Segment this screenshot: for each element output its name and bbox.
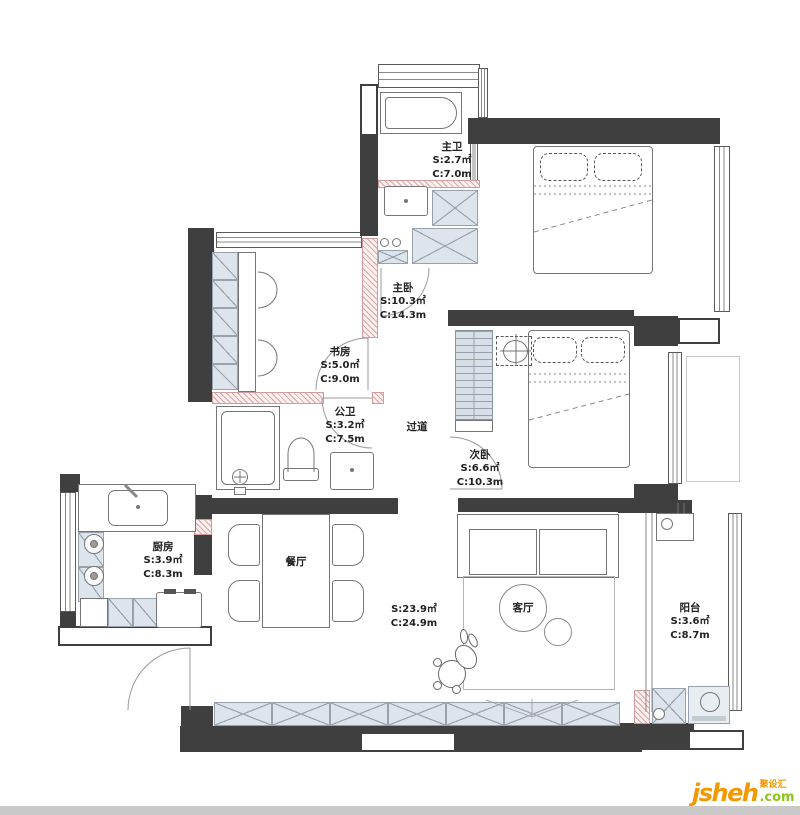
kitchen-cabinet <box>108 598 133 627</box>
rn: 次卧 <box>448 448 512 462</box>
tv-cabinet-cell <box>330 702 388 726</box>
bunny-paw <box>433 681 442 690</box>
dining-chair <box>228 524 260 566</box>
brand-text: jsheh <box>692 781 757 805</box>
bookcase-cell <box>212 336 238 364</box>
span: C:10.3m <box>448 476 512 490</box>
col: 聚设汇 .com <box>759 781 794 804</box>
window-jamb <box>678 318 720 344</box>
room-label-master-bedroom: 主卧S:10.3㎡C:14.3m <box>368 281 438 322</box>
shower-handle <box>234 487 246 495</box>
pillow <box>540 153 588 181</box>
shower-inner <box>221 411 275 485</box>
wardrobe <box>455 330 493 420</box>
span: C:7.0m <box>420 168 484 182</box>
wall-segment <box>448 310 634 326</box>
wall-gap <box>688 730 744 750</box>
fan-symbol <box>503 340 528 363</box>
bookcase-cell <box>212 280 238 308</box>
window-band <box>60 492 76 612</box>
span: C:24.9m <box>378 617 450 631</box>
floorplan-canvas: 主卫S:2.7㎡C:7.0m 主卧S:10.3㎡C:14.3m 书房S:5.0㎡… <box>0 0 800 815</box>
hatched-wall <box>634 690 650 724</box>
sofa-cushion <box>469 529 537 575</box>
brand-tld: .com <box>759 791 794 804</box>
hatched-wall <box>372 392 384 404</box>
wall-segment <box>618 500 692 513</box>
dining-chair <box>332 580 364 622</box>
tv-cabinet-cell <box>562 702 620 726</box>
fixture-dot <box>350 468 354 472</box>
rn: 餐厅 <box>272 555 320 569</box>
kitchen-cabinet <box>133 598 158 627</box>
room-label-kitchen: 厨房S:3.9㎡C:8.3m <box>131 540 195 581</box>
toilet <box>288 438 314 472</box>
span: C:9.0m <box>310 373 370 387</box>
pillow <box>594 153 642 181</box>
stove-burner-core <box>90 540 98 548</box>
wall-segment <box>634 316 678 346</box>
path <box>288 438 314 472</box>
span: S:3.2㎡ <box>313 419 377 433</box>
wall-segment <box>60 474 80 492</box>
room-label-dining: 餐厅 <box>272 555 320 569</box>
wall-segment <box>618 723 694 750</box>
room-label-master-bath: 主卫S:2.7㎡C:7.0m <box>420 140 484 181</box>
wardrobe-shelf <box>455 420 493 432</box>
span: S:10.3㎡ <box>368 295 438 309</box>
pillow <box>533 337 577 363</box>
room-label-living: 客厅 <box>499 601 547 615</box>
rn: 主卫 <box>420 140 484 154</box>
wall-segment <box>360 134 378 236</box>
bunny-paw <box>452 685 461 694</box>
window-band <box>714 146 730 312</box>
ac-platform <box>686 356 740 482</box>
room-label-study: 书房S:5.0㎡C:9.0m <box>310 345 370 386</box>
rn: 主卧 <box>368 281 438 295</box>
stove-burner-core <box>90 572 98 580</box>
bunny-paw <box>433 658 442 667</box>
wall-segment <box>194 495 212 575</box>
jsheh-watermark: jsheh 聚设汇 .com <box>692 781 795 805</box>
span: S:2.7㎡ <box>420 154 484 168</box>
fixture-dot <box>404 199 408 203</box>
tv-cabinet-cell <box>504 702 562 726</box>
hatched-wall <box>212 392 324 404</box>
rn: 客厅 <box>499 601 547 615</box>
washer-hookup <box>392 238 401 247</box>
window-band <box>478 68 488 118</box>
room-label-public-bath: 公卫S:3.2㎡C:7.5m <box>313 405 377 446</box>
span: C:8.7m <box>658 629 722 643</box>
bookcase-cell <box>212 308 238 336</box>
entry-wall <box>58 626 212 646</box>
window-jamb <box>360 84 378 136</box>
pillow <box>581 337 625 363</box>
wall-segment <box>188 252 212 402</box>
window-band <box>216 232 362 248</box>
entry-door <box>128 648 190 710</box>
desk <box>238 252 256 392</box>
fixture-dot <box>136 505 140 509</box>
span: S:23.9㎡ <box>378 603 450 617</box>
washer-controls <box>692 716 726 721</box>
shoe-cabinet <box>80 598 108 627</box>
room-label-balcony: 阳台S:3.6㎡C:8.7m <box>658 601 722 642</box>
bathtub-inner <box>385 97 457 129</box>
rn: 公卫 <box>313 405 377 419</box>
washer-door <box>700 692 720 712</box>
wall-gap <box>360 732 456 752</box>
shower-head <box>232 469 248 485</box>
span: C:14.3m <box>368 309 438 323</box>
balcony-door-track <box>646 513 652 712</box>
tv-cabinet-cell <box>272 702 330 726</box>
room-label-hallway: 过道 <box>393 420 441 434</box>
path <box>258 272 277 308</box>
tv-cabinet-cell <box>388 702 446 726</box>
dining-chair <box>332 524 364 566</box>
cabinet-box <box>378 250 408 264</box>
wall-segment <box>196 498 398 514</box>
span: C:7.5m <box>313 433 377 447</box>
cabinet-box <box>432 190 478 226</box>
floor-drain <box>653 708 665 720</box>
wall-segment <box>188 228 214 254</box>
window-band <box>668 352 682 484</box>
sofa-cushion <box>539 529 607 575</box>
bookcase-cell <box>212 364 238 390</box>
span: S:5.0㎡ <box>310 359 370 373</box>
room-label-living-dining: S:23.9㎡C:24.9m <box>378 603 450 630</box>
span: S:3.9㎡ <box>131 554 195 568</box>
dining-chair <box>228 580 260 622</box>
room-label-second-bedroom: 次卧S:6.6㎡C:10.3m <box>448 448 512 489</box>
toilet-base <box>283 468 319 481</box>
tv-cabinet-cell <box>214 702 272 726</box>
window-band <box>378 64 480 88</box>
appliance-knob <box>164 589 176 594</box>
rn: 厨房 <box>131 540 195 554</box>
rn: 阳台 <box>658 601 722 615</box>
cabinet-box <box>412 228 478 264</box>
side-table <box>544 618 572 646</box>
hatched-wall <box>194 519 212 535</box>
washer-hookup <box>380 238 389 247</box>
dining-table <box>262 514 330 628</box>
appliance-knob <box>184 589 196 594</box>
window-band <box>728 513 742 711</box>
tv-cabinet-cell <box>446 702 504 726</box>
bookcase-cell <box>212 252 238 280</box>
wall-segment <box>468 118 720 144</box>
path <box>646 513 652 712</box>
wall-segment <box>458 498 634 512</box>
rn: 过道 <box>393 420 441 434</box>
rn: 书房 <box>310 345 370 359</box>
bottom-divider <box>0 806 800 815</box>
path <box>258 340 277 376</box>
span: S:6.6㎡ <box>448 462 512 476</box>
water-heater-dial <box>661 518 673 530</box>
study-chairs <box>258 272 277 376</box>
span: S:3.6㎡ <box>658 615 722 629</box>
small-appliance <box>156 592 202 628</box>
span: C:8.3m <box>131 568 195 582</box>
